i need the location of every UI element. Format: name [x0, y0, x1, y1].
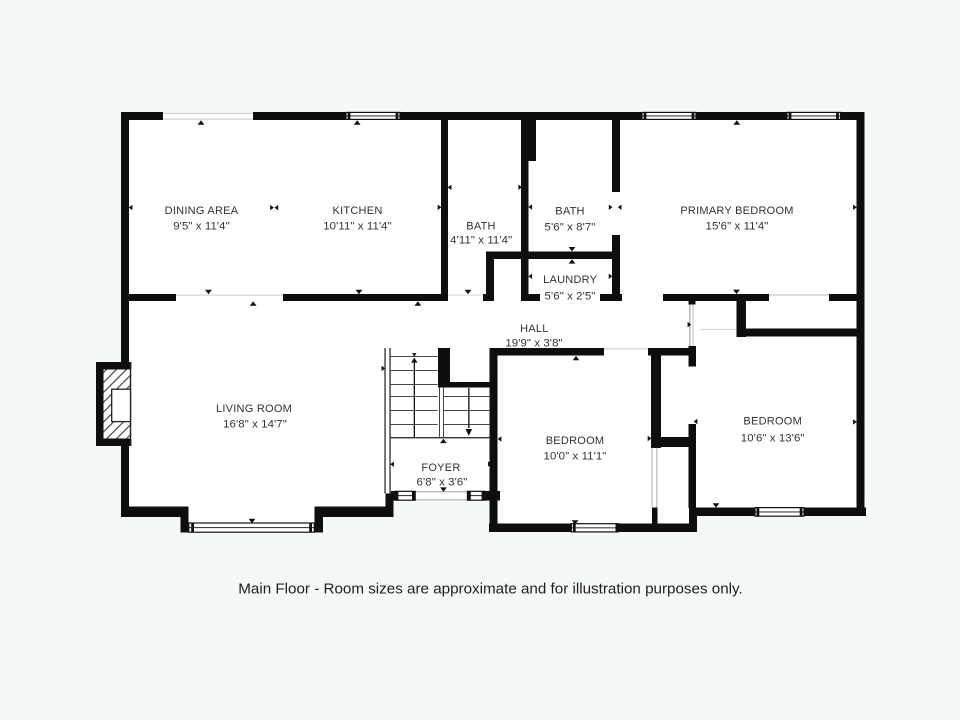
svg-text:DINING AREA: DINING AREA	[165, 205, 239, 217]
svg-text:BATH: BATH	[466, 220, 496, 232]
svg-text:Main Floor - Room sizes are ap: Main Floor - Room sizes are approximate …	[238, 581, 743, 598]
svg-text:HALL: HALL	[520, 323, 549, 335]
svg-text:10'11" x 11'4": 10'11" x 11'4"	[323, 220, 392, 232]
svg-text:10'6" x 13'6": 10'6" x 13'6"	[741, 432, 805, 444]
svg-text:9'5" x 11'4": 9'5" x 11'4"	[173, 220, 230, 232]
svg-text:KITCHEN: KITCHEN	[332, 205, 382, 217]
svg-text:LAUNDRY: LAUNDRY	[543, 274, 598, 286]
svg-text:FOYER: FOYER	[421, 462, 460, 474]
svg-text:BATH: BATH	[555, 206, 585, 218]
svg-text:19'9" x 3'8": 19'9" x 3'8"	[505, 337, 562, 349]
svg-text:10'0" x 11'1": 10'0" x 11'1"	[544, 451, 607, 463]
svg-text:15'6" x 11'4": 15'6" x 11'4"	[706, 221, 769, 233]
svg-text:16'8" x 14'7": 16'8" x 14'7"	[223, 419, 287, 431]
svg-text:6'8" x 3'6": 6'8" x 3'6"	[417, 477, 468, 489]
svg-text:LIVING ROOM: LIVING ROOM	[216, 403, 292, 415]
svg-text:PRIMARY BEDROOM: PRIMARY BEDROOM	[680, 205, 793, 217]
svg-text:BEDROOM: BEDROOM	[743, 416, 802, 428]
svg-text:BEDROOM: BEDROOM	[546, 435, 605, 447]
svg-text:5'6" x 2'5": 5'6" x 2'5"	[545, 290, 596, 302]
svg-text:4'11" x 11'4": 4'11" x 11'4"	[450, 235, 512, 247]
svg-text:5'6" x 8'7": 5'6" x 8'7"	[545, 222, 596, 234]
